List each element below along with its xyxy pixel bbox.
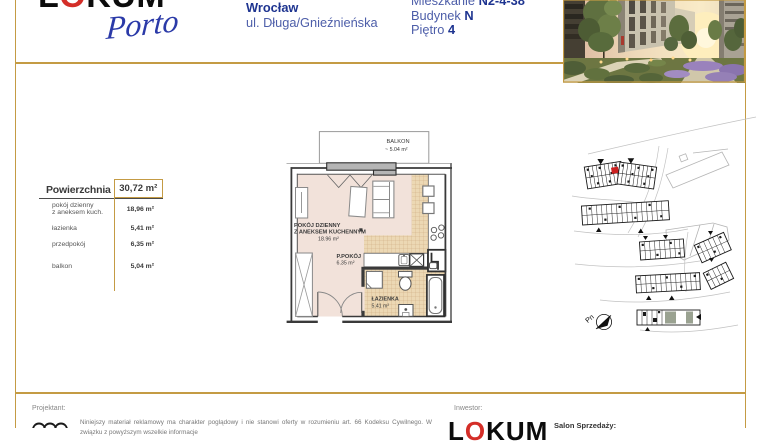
svg-text:Pn: Pn	[583, 312, 596, 325]
